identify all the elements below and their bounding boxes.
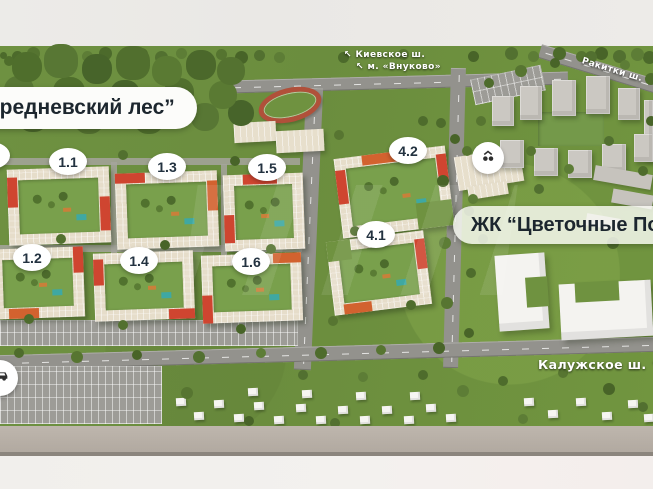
building-badge-4-2[interactable]: 4.2 xyxy=(389,137,427,164)
courtyard-opening xyxy=(416,199,455,229)
badge-label: 4.2 xyxy=(398,144,417,158)
badge-label: 1.2 xyxy=(22,251,41,265)
massing-opening xyxy=(575,280,620,302)
cottage xyxy=(410,392,420,401)
cottage xyxy=(360,416,370,425)
parking-lot xyxy=(0,366,162,424)
courtyard-opening xyxy=(326,239,352,262)
building-badge-1-3[interactable]: 1.3 xyxy=(148,153,186,180)
cottage xyxy=(404,416,414,425)
gray-tower xyxy=(520,86,542,120)
building-badge-1-4[interactable]: 1.4 xyxy=(120,247,158,274)
cottage xyxy=(194,412,204,421)
cottage xyxy=(628,400,638,409)
background-top xyxy=(0,0,653,46)
forest-label: ередневский лес” xyxy=(0,96,175,120)
car-icon xyxy=(0,365,11,392)
building-red-section xyxy=(7,177,18,207)
building-red-section xyxy=(169,308,195,319)
road-label-text: м. «Внуково» xyxy=(368,62,441,72)
gray-tower xyxy=(552,80,576,116)
arrow-up-left-icon: ↖ xyxy=(344,50,352,60)
complex-title-pill: ЖК “Цветочные По xyxy=(453,206,653,244)
cottage xyxy=(214,400,224,409)
gray-tower xyxy=(568,150,592,178)
gray-tower xyxy=(618,88,640,120)
cottage xyxy=(356,392,366,401)
building-red-section xyxy=(93,259,104,285)
landmark-marker[interactable] xyxy=(472,142,504,174)
cottage xyxy=(248,388,258,397)
forest-label-pill: ередневский лес” xyxy=(0,87,197,129)
building-red-section xyxy=(115,173,145,184)
cottage xyxy=(176,398,186,407)
quarter-1-3[interactable] xyxy=(115,170,220,250)
cottage xyxy=(602,412,612,421)
tree-scatter xyxy=(0,0,6,6)
gray-tower xyxy=(492,96,514,126)
cottage xyxy=(296,404,306,413)
badge-label: 1.4 xyxy=(129,254,148,268)
parking-lot xyxy=(0,320,298,346)
cottage xyxy=(548,410,558,419)
badge-label: 1.1 xyxy=(58,155,77,169)
white-massing-block xyxy=(494,252,549,331)
building-red-section xyxy=(202,295,213,323)
cottage xyxy=(446,414,456,423)
road-label-kaluzhskoe: Калужское ш. ↘ xyxy=(538,357,653,372)
badge-label: 1.6 xyxy=(241,255,260,269)
courtyard xyxy=(126,182,208,239)
quarter-1-1[interactable] xyxy=(7,166,112,246)
building-orange-section xyxy=(273,252,301,263)
building-landmark-icon xyxy=(479,147,497,170)
courtyard xyxy=(234,184,294,240)
building-badge-1-6[interactable]: 1.6 xyxy=(232,248,270,275)
badge-label: 4.1 xyxy=(366,228,385,242)
white-massing-block xyxy=(559,280,653,341)
cottage xyxy=(234,414,244,423)
building-badge-1-5[interactable]: 1.5 xyxy=(248,154,286,181)
cottage xyxy=(316,416,326,425)
cottage xyxy=(254,402,264,411)
cottage xyxy=(274,416,284,425)
cottage xyxy=(302,390,312,399)
cottage xyxy=(382,406,392,415)
masterplan-canvas: ередневский лес” ЖК “Цветочные По ↖ Киев… xyxy=(0,0,653,489)
gray-courtyard xyxy=(538,112,604,146)
arrow-up-left-icon: ↖ xyxy=(356,62,364,72)
quarter-1-5[interactable] xyxy=(223,173,306,252)
school-building xyxy=(234,121,277,143)
forest xyxy=(4,56,14,66)
road-label-text: Калужское ш. xyxy=(538,357,647,372)
model-podium-edge xyxy=(0,426,653,453)
building-badge-4-1[interactable]: 4.1 xyxy=(357,221,395,248)
building-red-section xyxy=(100,196,111,230)
cottage xyxy=(338,406,348,415)
cottage xyxy=(524,398,534,407)
building-red-section xyxy=(224,215,235,243)
road-label-text: Киевское ш. xyxy=(356,50,426,60)
complex-title: ЖК “Цветочные По xyxy=(471,214,653,237)
gray-tower xyxy=(634,134,653,162)
building-badge-1-2[interactable]: 1.2 xyxy=(13,244,51,271)
cottage xyxy=(426,404,436,413)
building-orange-section xyxy=(207,180,218,210)
cottage xyxy=(644,414,653,423)
building-red-section xyxy=(73,246,84,272)
building-badge-1-1[interactable]: 1.1 xyxy=(49,148,87,175)
cottage xyxy=(576,398,586,407)
gray-tower xyxy=(534,148,558,176)
road-label-metro-vnukovo: ↖ м. «Внуково» xyxy=(356,62,441,72)
school-building xyxy=(275,129,324,153)
badge-label: 1.5 xyxy=(257,161,276,175)
background-bottom xyxy=(0,456,653,489)
courtyard xyxy=(18,178,100,235)
building-orange-section xyxy=(9,308,39,319)
massing-opening xyxy=(525,276,549,307)
gray-tower xyxy=(586,76,610,114)
road-label-kievskoe: ↖ Киевское ш. xyxy=(344,50,425,60)
badge-label: 1.3 xyxy=(157,160,176,174)
